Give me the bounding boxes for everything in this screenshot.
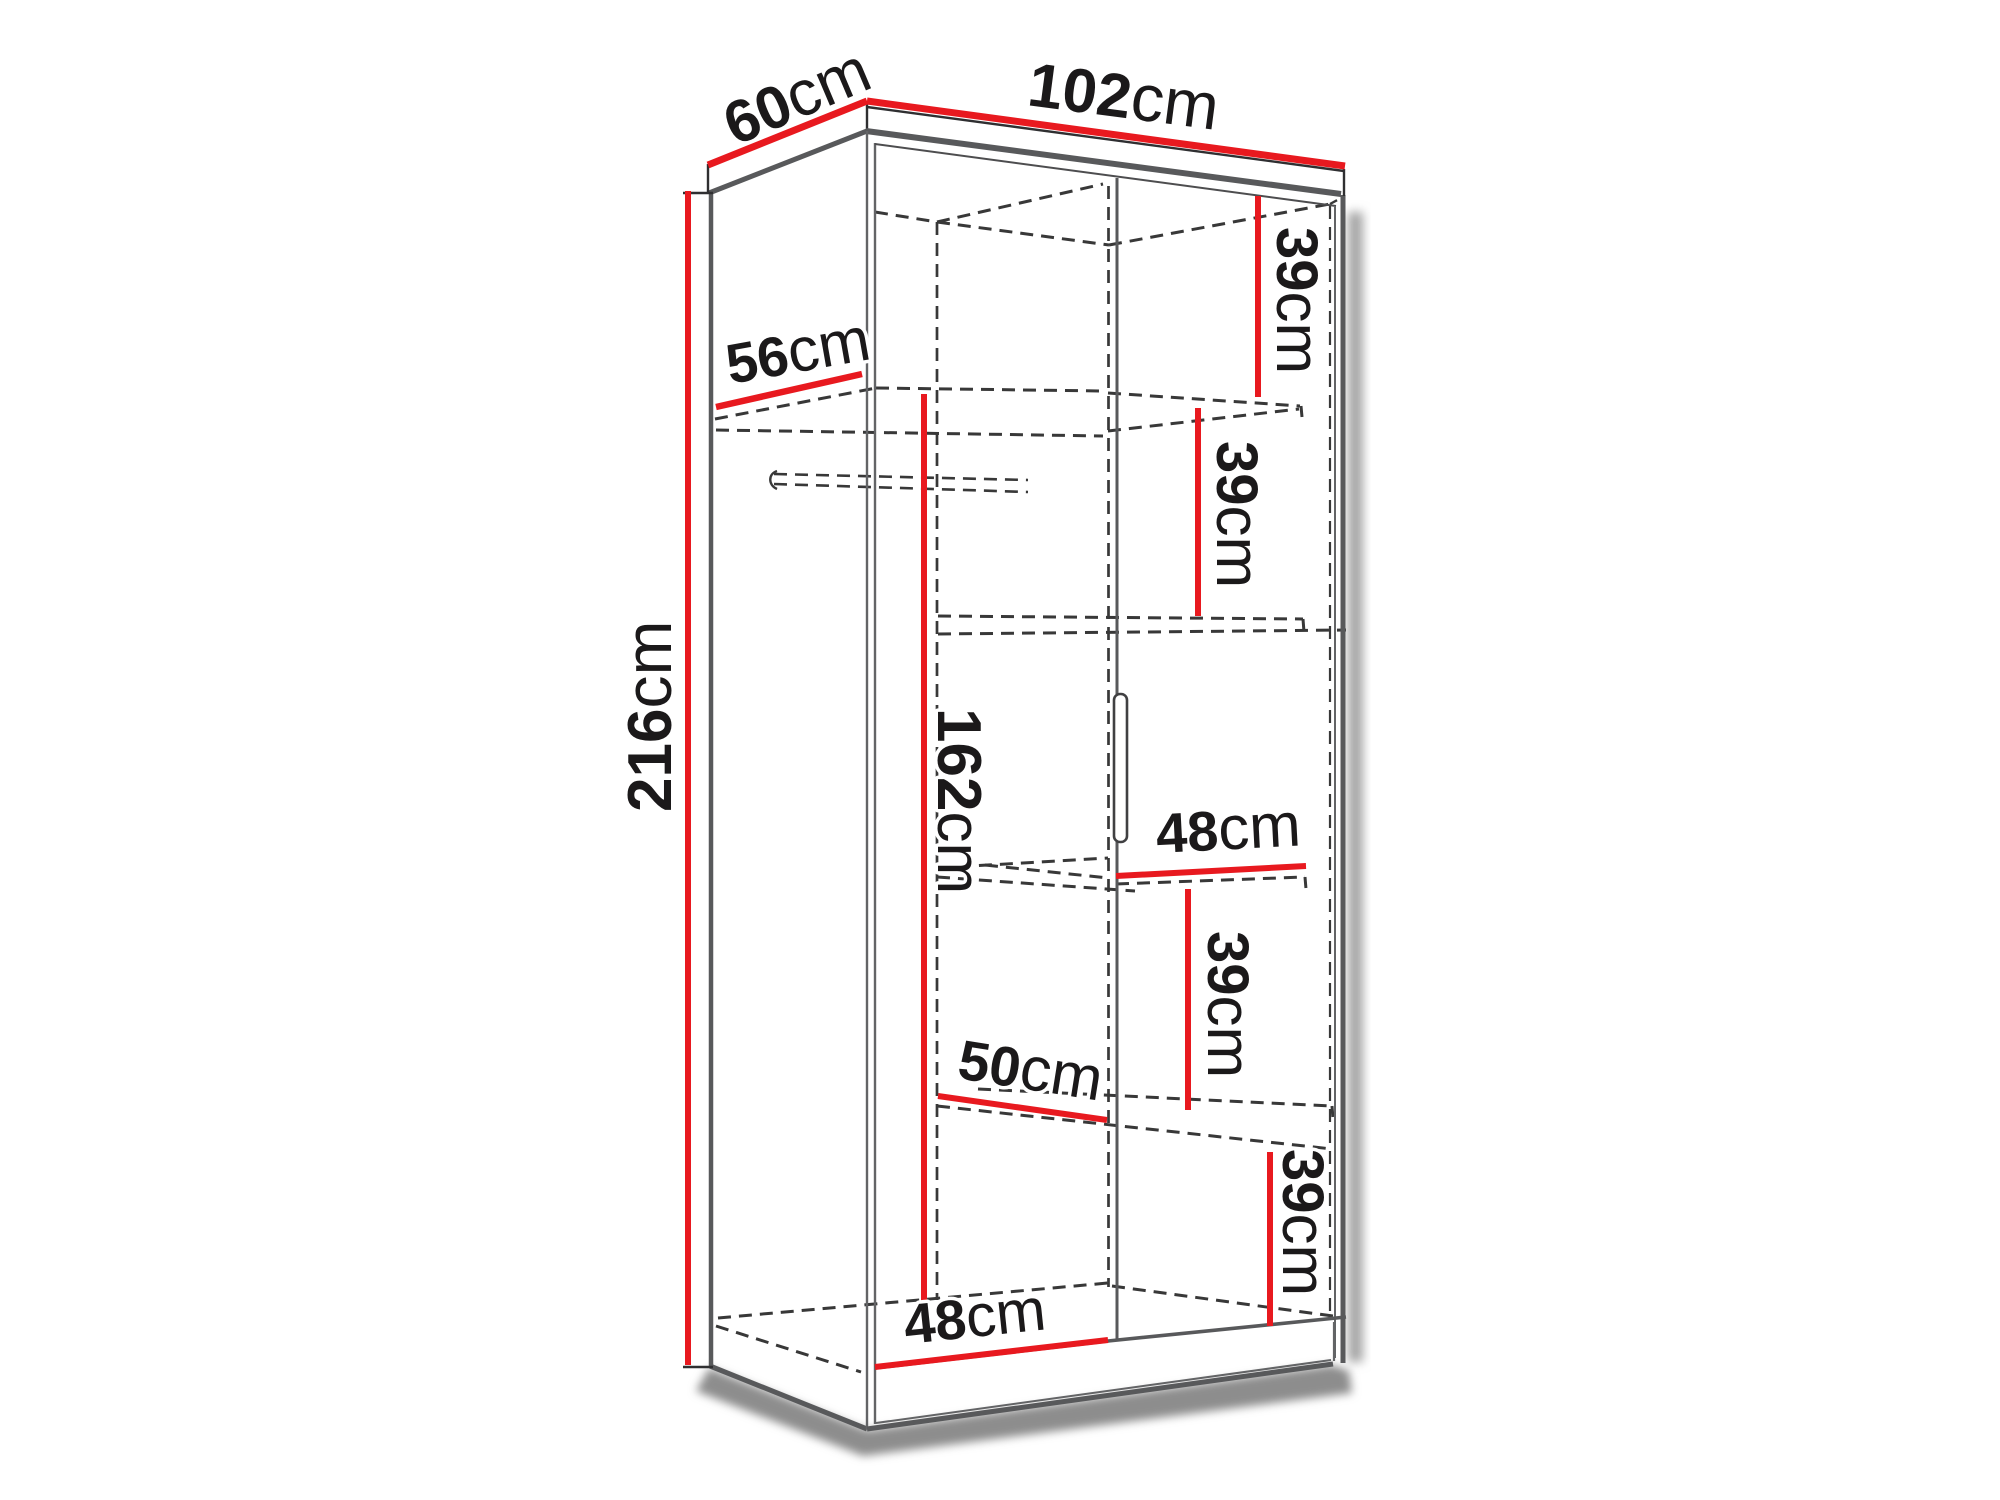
svg-text:39cm: 39cm — [1203, 441, 1272, 588]
svg-text:48cm: 48cm — [1154, 790, 1302, 866]
svg-text:60cm: 60cm — [712, 33, 880, 159]
svg-text:162cm: 162cm — [924, 708, 993, 894]
svg-text:39cm: 39cm — [1194, 931, 1263, 1078]
svg-text:39cm: 39cm — [1263, 227, 1332, 374]
svg-text:216cm: 216cm — [611, 621, 685, 812]
svg-text:56cm: 56cm — [720, 305, 875, 398]
svg-text:39cm: 39cm — [1269, 1149, 1338, 1296]
